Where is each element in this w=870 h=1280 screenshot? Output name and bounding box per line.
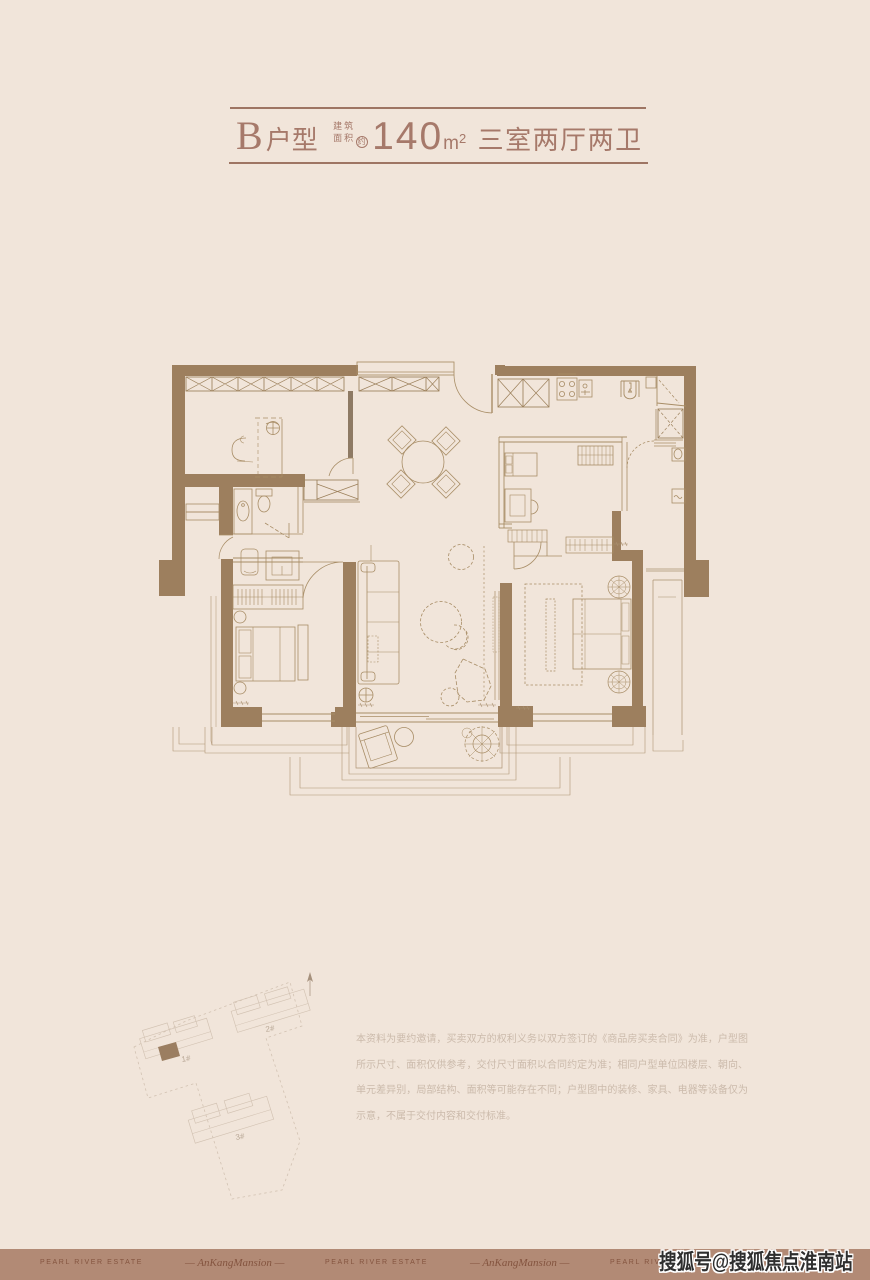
svg-text:3#: 3# [235, 1131, 246, 1142]
svg-text:2#: 2# [265, 1023, 276, 1034]
svg-text:1#: 1# [181, 1053, 192, 1064]
